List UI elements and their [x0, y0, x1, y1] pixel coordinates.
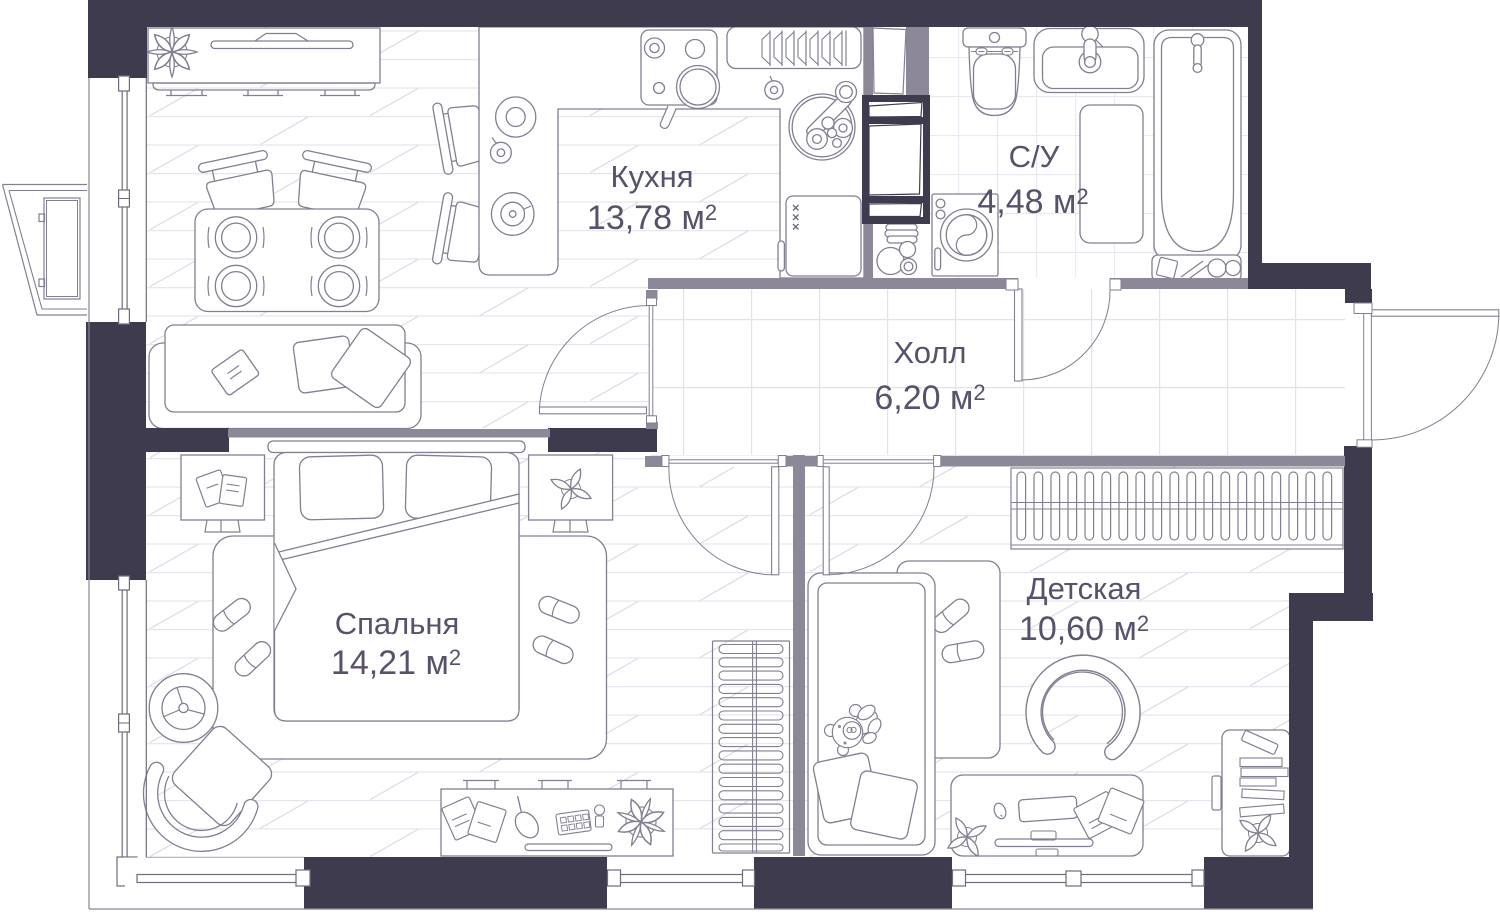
svg-text:6,20 м2: 6,20 м2 — [874, 379, 985, 417]
svg-text:14,21 м2: 14,21 м2 — [331, 644, 461, 682]
svg-text:Холл: Холл — [893, 335, 966, 370]
svg-text:С/У: С/У — [1009, 139, 1060, 174]
svg-text:10,60 м2: 10,60 м2 — [1019, 610, 1149, 648]
svg-text:Спальня: Спальня — [335, 606, 460, 641]
svg-text:4,48 м2: 4,48 м2 — [977, 183, 1088, 221]
svg-text:Кухня: Кухня — [611, 159, 694, 194]
svg-text:13,78 м2: 13,78 м2 — [587, 199, 717, 237]
svg-text:Детская: Детская — [1027, 571, 1142, 606]
